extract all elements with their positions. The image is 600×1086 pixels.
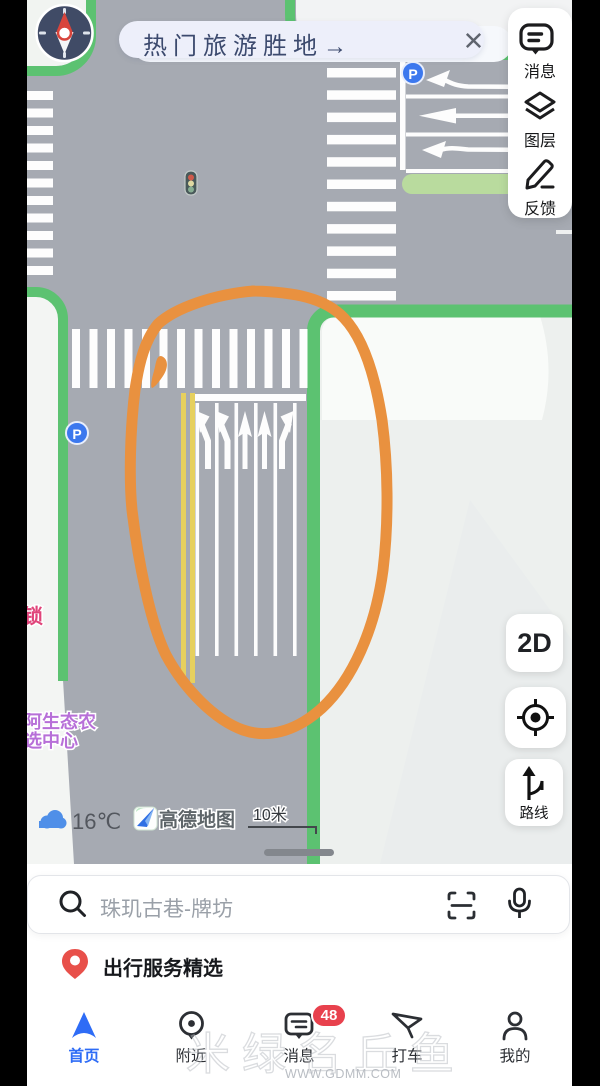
svg-text:高德地图: 高德地图 bbox=[159, 808, 235, 831]
svg-text:P: P bbox=[408, 66, 417, 82]
svg-text:16℃: 16℃ bbox=[72, 809, 121, 834]
svg-text:10米: 10米 bbox=[253, 806, 287, 824]
svg-text:P: P bbox=[72, 426, 81, 442]
svg-text:选中心: 选中心 bbox=[24, 730, 78, 751]
svg-text:阿生态农: 阿生态农 bbox=[24, 711, 96, 732]
